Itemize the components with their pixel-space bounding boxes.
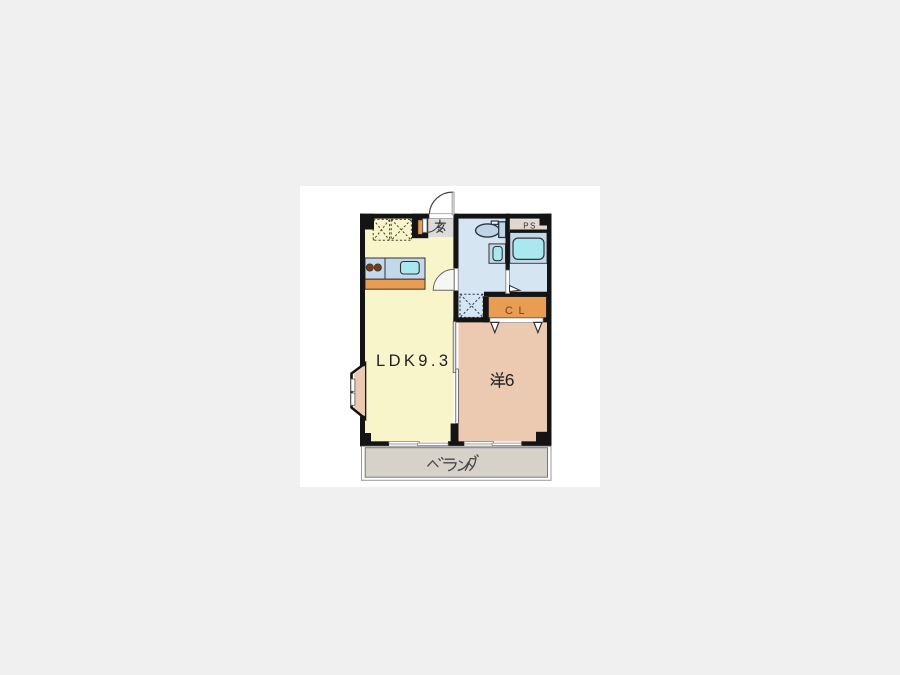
svg-text:6: 6: [505, 370, 515, 390]
svg-text:PS: PS: [523, 222, 537, 231]
svg-text:LDK9.3: LDK9.3: [376, 352, 451, 370]
svg-text:CL: CL: [505, 305, 530, 317]
